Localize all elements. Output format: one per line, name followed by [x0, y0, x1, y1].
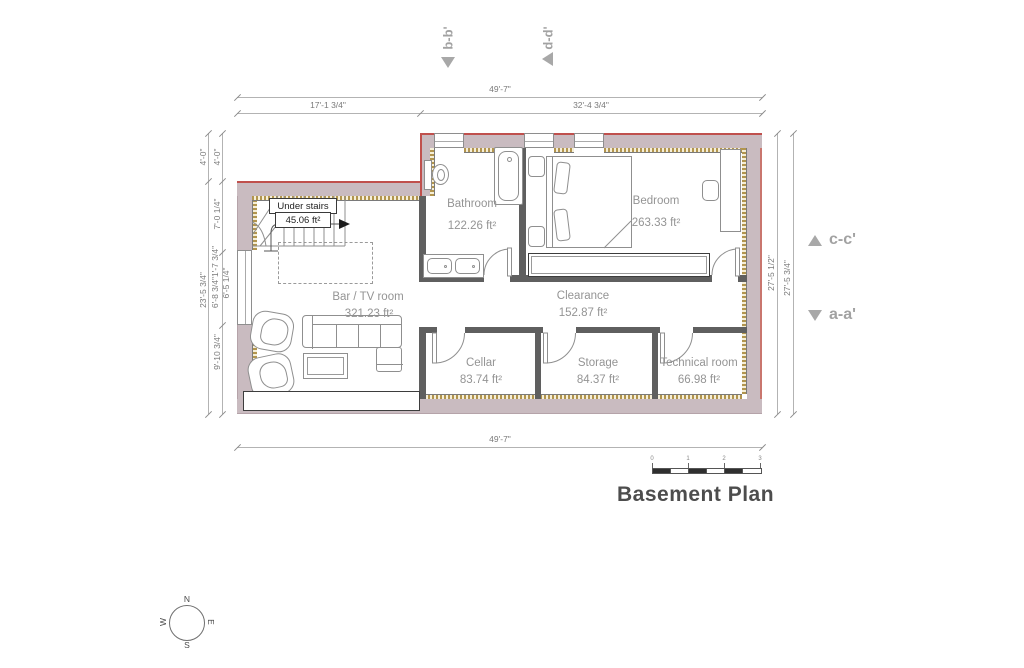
clearance-label: Clearance [557, 290, 609, 302]
dim-left-inner-2a: 6'-8 3/4" [210, 277, 220, 308]
dim-left-inner-4: 9'-10 3/4" [212, 334, 222, 370]
scale-bar-seg [688, 468, 708, 474]
scale-bar-seg [724, 468, 744, 474]
clearance-area: 152.87 ft² [559, 307, 608, 319]
dim-right-2: 27'-5 3/4" [782, 260, 792, 296]
section-marker-c-label: c-c' [829, 231, 856, 249]
dim-left-outer-total: 23'-5 3/4" [198, 272, 208, 308]
section-marker-b: b-b' [441, 26, 456, 49]
bedroom-label: Bedroom [633, 195, 680, 207]
dim-line-left-outer [208, 133, 209, 414]
compass-south: S [184, 640, 190, 650]
dim-left-inner-3: 6'-5 1/4" [221, 267, 231, 298]
scale-bar-seg [670, 468, 690, 474]
dim-left-inner-step: 4'-0" [212, 149, 222, 166]
door-bathroom [484, 248, 512, 276]
dim-line-top-total [237, 97, 762, 98]
dim-left-outer-step: 4'-0" [198, 149, 208, 166]
section-marker-a-label: a-a' [829, 306, 856, 324]
floor-plan-page: Under stairs 45.06 ft² Bathroom 122.26 f… [0, 0, 1024, 668]
compass-north: N [184, 594, 190, 604]
scale-tick-label: 3 [758, 456, 761, 462]
section-arrow-a-icon [808, 310, 822, 321]
scale-tick-label: 1 [686, 456, 689, 462]
technical-area: 66.98 ft² [678, 374, 720, 386]
plan-linework [0, 0, 1024, 668]
dim-line-right-1 [777, 133, 778, 414]
dim-line-bottom [237, 447, 762, 448]
bar-tv-label: Bar / TV room [332, 291, 403, 303]
section-marker-a: a-a' [808, 306, 856, 324]
section-arrow-b-icon [441, 57, 455, 68]
dim-right-1: 27'-5 1/2" [766, 255, 776, 291]
dim-top-total: 49'-7" [489, 84, 511, 94]
section-arrow-d-icon [542, 52, 553, 66]
scale-bar-seg [742, 468, 762, 474]
scale-tick-label: 0 [650, 456, 653, 462]
door-cellar [433, 333, 465, 363]
dim-left-inner-2b: 1'-7 3/4" [210, 246, 220, 277]
door-storage [544, 333, 576, 363]
scale-bar-seg [706, 468, 726, 474]
bar-tv-area: 321.23 ft² [345, 308, 394, 320]
section-marker-c: c-c' [808, 231, 856, 249]
section-arrow-c-icon [808, 235, 822, 246]
scale-tick [724, 463, 725, 468]
bed-fold-line [604, 221, 631, 248]
scale-tick [688, 463, 689, 468]
cellar-label: Cellar [466, 357, 496, 369]
bathroom-label: Bathroom [447, 198, 497, 210]
compass-icon [169, 605, 205, 641]
scale-bar-seg [652, 468, 672, 474]
under-stairs-area: 45.06 ft² [286, 215, 321, 226]
scale-tick [652, 463, 653, 468]
storage-area: 84.37 ft² [577, 374, 619, 386]
scale-tick-label: 2 [722, 456, 725, 462]
door-bedroom [712, 248, 740, 276]
dim-line-right-2 [793, 133, 794, 414]
dim-left-inner-1: 7'-0 1/4" [212, 198, 222, 229]
dim-bottom-total: 49'-7" [489, 434, 511, 444]
section-marker-d: d-d' [541, 26, 556, 49]
under-stairs-name: Under stairs [277, 201, 328, 212]
dim-top-seg1: 17'-1 3/4" [310, 100, 346, 110]
technical-label: Technical room [660, 357, 737, 369]
dim-line-top-segments [237, 113, 762, 114]
storage-label: Storage [578, 357, 618, 369]
cellar-area: 83.74 ft² [460, 374, 502, 386]
bedroom-area: 263.33 ft² [632, 217, 681, 229]
scale-tick [760, 463, 761, 468]
plan-title: Basement Plan [617, 483, 774, 507]
dim-top-seg2: 32'-4 3/4" [573, 100, 609, 110]
dim-left-inner-2: 6'-8 3/4"1'-7 3/4" [210, 246, 220, 308]
under-stairs-area-box: 45.06 ft² [275, 212, 331, 228]
compass-east: E [206, 619, 216, 625]
bathroom-area: 122.26 ft² [448, 220, 497, 232]
compass-west: W [158, 618, 168, 626]
